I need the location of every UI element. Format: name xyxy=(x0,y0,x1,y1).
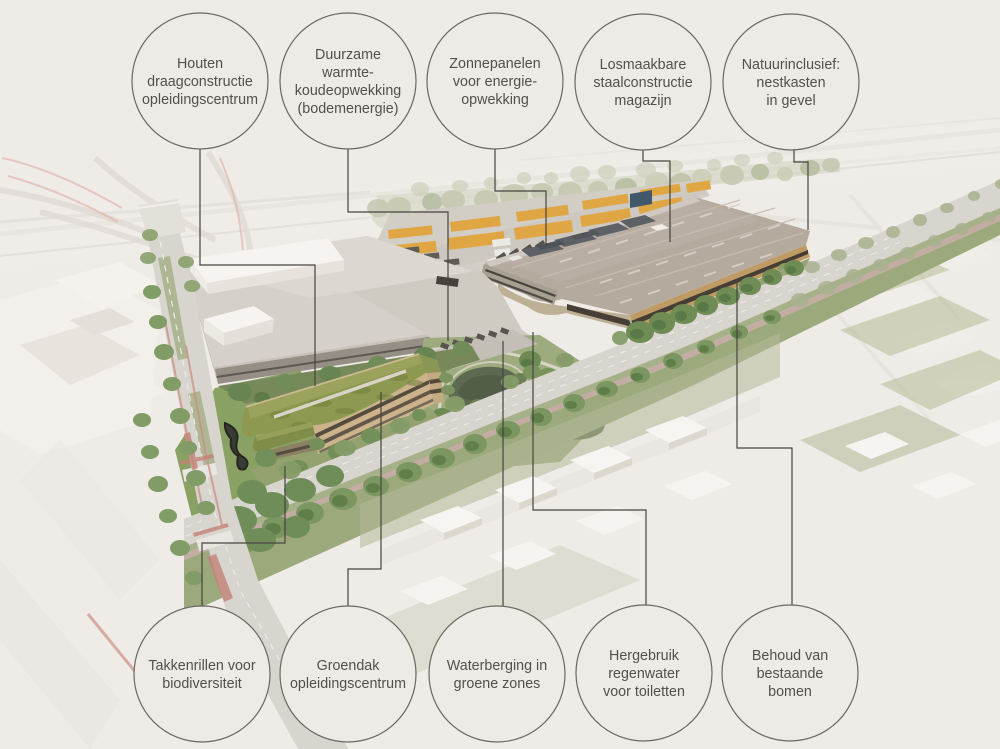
svg-text:bomen: bomen xyxy=(768,684,812,700)
svg-text:magazijn: magazijn xyxy=(614,93,671,109)
svg-text:voor toiletten: voor toiletten xyxy=(603,684,685,700)
svg-text:opleidingscentrum: opleidingscentrum xyxy=(142,92,258,108)
svg-text:voor energie-: voor energie- xyxy=(453,74,537,90)
svg-text:opwekking: opwekking xyxy=(461,92,529,108)
svg-text:warmte-: warmte- xyxy=(321,65,374,81)
svg-text:Natuurinclusief:: Natuurinclusief: xyxy=(742,57,841,73)
svg-text:draagconstructie: draagconstructie xyxy=(147,74,253,90)
svg-text:staalconstructie: staalconstructie xyxy=(593,75,692,91)
svg-text:groene zones: groene zones xyxy=(454,676,541,692)
svg-text:biodiversiteit: biodiversiteit xyxy=(162,676,241,692)
svg-text:Waterberging in: Waterberging in xyxy=(447,658,547,674)
svg-text:Losmaakbare: Losmaakbare xyxy=(600,57,687,73)
svg-text:koudeopwekking: koudeopwekking xyxy=(295,83,402,99)
svg-text:Behoud van: Behoud van xyxy=(752,648,828,664)
svg-text:opleidingscentrum: opleidingscentrum xyxy=(290,676,406,692)
svg-text:nestkasten: nestkasten xyxy=(756,75,825,91)
svg-text:in gevel: in gevel xyxy=(766,93,815,109)
svg-text:Zonnepanelen: Zonnepanelen xyxy=(449,56,540,72)
svg-text:regenwater: regenwater xyxy=(608,666,680,682)
svg-text:(bodemenergie): (bodemenergie) xyxy=(298,101,399,117)
svg-text:Hergebruik: Hergebruik xyxy=(609,648,680,664)
svg-text:Takkenrillen voor: Takkenrillen voor xyxy=(148,658,256,674)
svg-text:Groendak: Groendak xyxy=(317,658,381,674)
svg-text:Houten: Houten xyxy=(177,56,223,72)
svg-text:Duurzame: Duurzame xyxy=(315,47,381,63)
svg-text:bestaande: bestaande xyxy=(757,666,824,682)
